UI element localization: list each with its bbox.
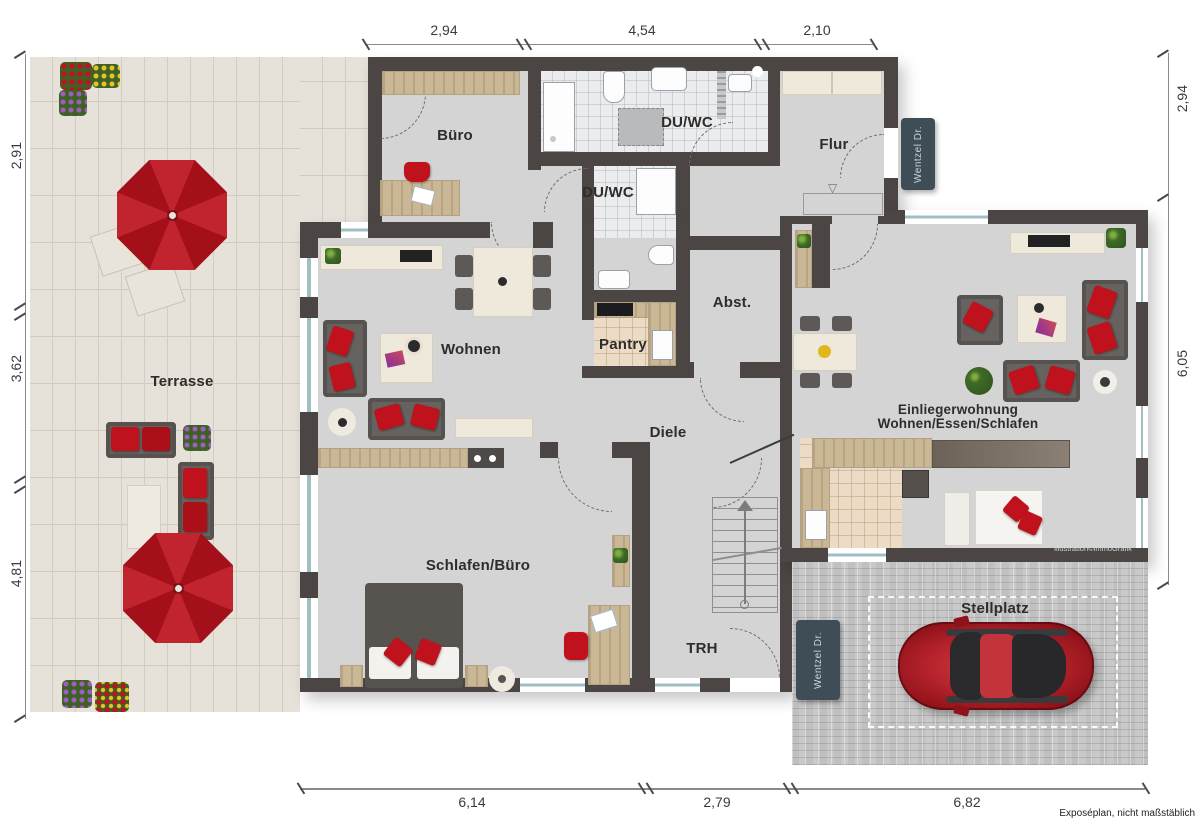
bed [365, 583, 463, 688]
dimension-label: 2,79 [677, 794, 757, 810]
window [1136, 498, 1148, 548]
sofa [1082, 280, 1128, 360]
dimension-label: 2,94 [1174, 85, 1190, 165]
window [300, 598, 318, 678]
car [898, 622, 1094, 710]
decor-bowl [1034, 303, 1044, 313]
dimension-line-right [1168, 53, 1169, 585]
dimension-label: 4,54 [602, 22, 682, 38]
wall [690, 236, 780, 250]
illustrator-credit: Illustration©immoGrafik [1030, 544, 1132, 553]
wardrobe [782, 71, 882, 95]
dimension-label: 4,81 [8, 560, 24, 640]
room-label-trh: TRH [672, 640, 732, 657]
side-table-decor [1100, 377, 1110, 387]
room-label-abstellraum: Abst. [692, 294, 772, 311]
stair-start [740, 600, 749, 609]
washbasin [728, 74, 752, 92]
outdoor-sofa [178, 462, 214, 540]
nightstand [465, 665, 488, 687]
wall [812, 224, 830, 288]
room-label-flur: Flur [800, 136, 868, 153]
sideboard-dark [932, 440, 1070, 468]
terrace-door [341, 222, 368, 238]
door-opening [730, 678, 780, 692]
fruit-bowl [818, 345, 831, 358]
room-label-duwc-mid: DU/WC [570, 184, 646, 201]
window [1136, 406, 1148, 458]
sink [805, 510, 827, 540]
flowerbed-red [60, 62, 92, 90]
rug-center [498, 675, 506, 683]
plant [325, 248, 341, 264]
room-label-pantry: Pantry [583, 336, 663, 353]
entrance-door-opening [884, 128, 898, 178]
table-decor [498, 277, 507, 286]
console-table [455, 418, 533, 438]
window [1136, 248, 1148, 302]
kitchen-counter [812, 438, 932, 468]
kitchen-row [318, 448, 468, 468]
niche-outline [803, 193, 883, 215]
shower [543, 82, 575, 152]
window [520, 678, 585, 692]
plant [797, 234, 811, 248]
flowerbed-purple [59, 90, 87, 116]
radiator [717, 71, 726, 119]
light-fixture [752, 66, 763, 77]
room-label-einlieger-line2: Wohnen/Essen/Schlafen [858, 416, 1058, 431]
parasol [123, 533, 233, 643]
wall [533, 222, 553, 248]
dimension-label: 2,10 [777, 22, 857, 38]
wall [676, 362, 694, 378]
desk-chair [564, 632, 588, 660]
plant [613, 548, 628, 563]
room-label-einlieger-line1: Einliegerwohnung [868, 402, 1048, 417]
dim-tick [1157, 193, 1169, 201]
parasol [117, 160, 227, 270]
room-label-stellplatz: Stellplatz [925, 600, 1065, 617]
wall [582, 290, 688, 302]
dimension-line-left [25, 54, 26, 719]
decor-bowl [408, 340, 420, 352]
terrace-area-upper [300, 57, 368, 222]
dim-tick [14, 475, 26, 483]
wall [740, 362, 780, 378]
room-label-buero: Büro [405, 127, 505, 144]
chair [800, 316, 820, 331]
street-sign: Wentzel Dr. [901, 118, 935, 190]
nightstand [340, 665, 363, 687]
car-roof [980, 634, 1014, 698]
car-mirror [953, 615, 970, 627]
room-label-duwc-top: DU/WC [649, 114, 725, 131]
passage [768, 172, 780, 216]
car-windshield [950, 632, 982, 700]
chair [800, 373, 820, 388]
dimension-label: 3,62 [8, 355, 24, 435]
washbasin [651, 67, 687, 91]
rug-center [338, 418, 347, 427]
dimension-label: 6,05 [1174, 350, 1190, 430]
cooktop [597, 303, 633, 316]
dim-tick [14, 485, 26, 493]
dimension-label: 6,14 [432, 794, 512, 810]
door-marker-icon: ▽ [828, 181, 837, 195]
tv [400, 250, 432, 262]
stair-arrow-line [744, 508, 746, 604]
flowerbed-purple [62, 680, 92, 708]
sofa [368, 398, 445, 440]
chair [832, 373, 852, 388]
plan-footnote: Exposéplan, nicht maßstäblich [950, 808, 1195, 819]
window [300, 318, 318, 412]
dimension-label: 2,91 [8, 142, 24, 222]
dimension-line-top [365, 44, 873, 45]
flowerbed-yellow [92, 64, 120, 88]
armchair [957, 295, 1003, 345]
shower-drain [550, 136, 556, 142]
toilet [603, 71, 625, 103]
passage [832, 216, 878, 224]
wardrobe [382, 71, 520, 95]
dim-tick [14, 302, 26, 310]
flowerbed-red-yellow [95, 682, 129, 712]
window [905, 210, 988, 224]
wall [582, 366, 688, 378]
bed-bench [944, 492, 970, 546]
wall [676, 238, 690, 378]
wall [540, 442, 558, 458]
tv [1028, 235, 1070, 247]
chair [832, 316, 852, 331]
room-label-diele: Diele [628, 424, 708, 441]
dim-tick [14, 312, 26, 320]
floor-corridor-east [690, 166, 780, 238]
chair [455, 288, 473, 310]
chair [533, 255, 551, 277]
passage [528, 170, 541, 222]
toilet [648, 245, 674, 265]
desk-chair [404, 162, 430, 182]
dim-tick [1157, 49, 1169, 57]
chair [533, 288, 551, 310]
sofa [323, 320, 367, 397]
window [300, 475, 318, 572]
car-rear-glass [1012, 634, 1066, 698]
street-sign: Wentzel Dr. [796, 620, 840, 700]
washbasin [598, 270, 630, 289]
room-label-terrasse: Terrasse [130, 373, 234, 390]
room-label-schlafen-buero: Schlafen/Büro [408, 557, 548, 574]
wall [582, 302, 594, 320]
dim-tick [14, 714, 26, 722]
bed [975, 490, 1043, 545]
window [655, 678, 700, 692]
floor-plan: Terrasse [0, 0, 1200, 835]
room-label-wohnen: Wohnen [421, 341, 521, 358]
dimension-line-bottom [300, 788, 1145, 790]
dim-tick [1157, 581, 1169, 589]
stair-arrow-head [737, 500, 753, 511]
dimension-label: 2,94 [404, 22, 484, 38]
chair [455, 255, 473, 277]
kitchen-row-dark [468, 448, 504, 468]
plant [965, 367, 993, 395]
dim-tick [14, 50, 26, 58]
sofa [1003, 360, 1080, 402]
plant [1106, 228, 1126, 248]
outdoor-sofa [106, 422, 176, 458]
flowerbed-purple [183, 425, 211, 451]
oven [902, 470, 929, 498]
window [300, 258, 318, 297]
wall [632, 442, 650, 692]
window [828, 548, 886, 562]
